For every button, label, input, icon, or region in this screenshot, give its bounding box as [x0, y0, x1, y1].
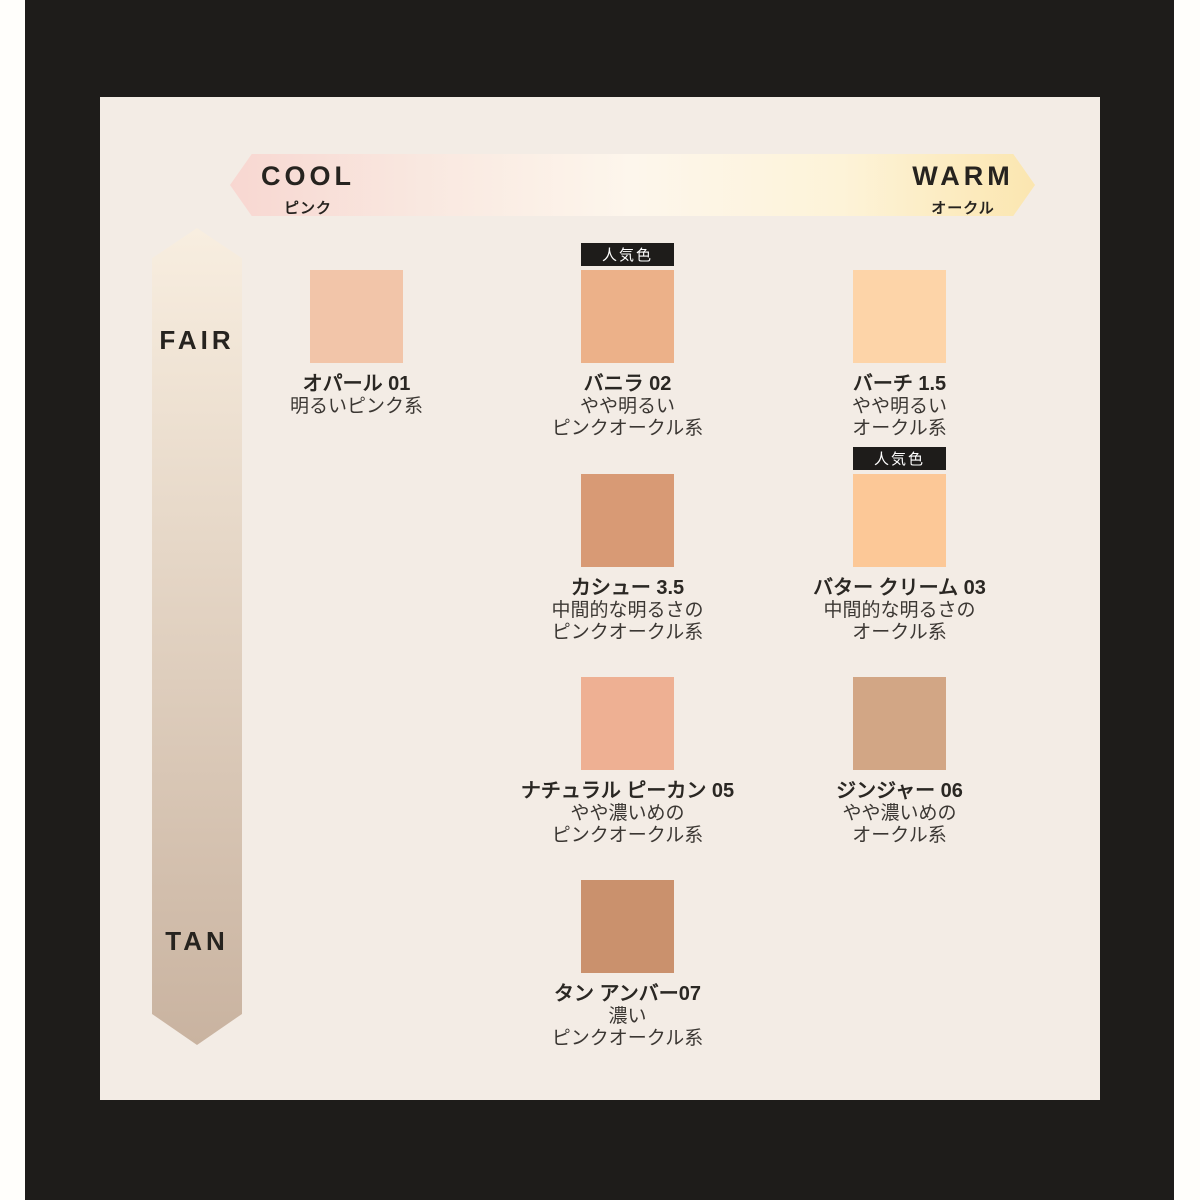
shade-item: オパール 01 明るいピンク系 [310, 270, 403, 363]
cool-label: COOL [261, 163, 355, 190]
shade-name: カシュー 3.5 [551, 577, 703, 600]
warm-sublabel: オークル [912, 197, 1013, 218]
shade-chart-panel: COOL ピンク WARM オークル FAIR TAN オパール 01 明るいピ… [100, 97, 1100, 1100]
popular-badge: 人気色 [853, 447, 946, 470]
shade-desc: やや濃いめの [521, 803, 734, 825]
popular-badge: 人気色 [581, 243, 674, 266]
shade-swatch [853, 270, 946, 363]
shade-desc: ピンクオークル系 [551, 622, 703, 644]
shade-item: ナチュラル ピーカン 05 やや濃いめのピンクオークル系 [581, 677, 674, 770]
warm-label: WARM [912, 163, 1013, 190]
shade-labels: ジンジャー 06 やや濃いめのオークル系 [836, 780, 963, 847]
shade-swatch [853, 677, 946, 770]
shade-name: タン アンバー07 [552, 983, 703, 1006]
shade-swatch [581, 474, 674, 567]
shade-item: 人気色 バニラ 02 やや明るいピンクオークル系 [581, 270, 674, 363]
shade-swatch [853, 474, 946, 567]
shade-name: バター クリーム 03 [813, 577, 986, 600]
shade-desc: 濃い [552, 1006, 703, 1028]
shade-item: ジンジャー 06 やや濃いめのオークル系 [853, 677, 946, 770]
shade-labels: カシュー 3.5 中間的な明るさのピンクオークル系 [551, 577, 703, 644]
shade-labels: バター クリーム 03 中間的な明るさのオークル系 [813, 577, 986, 644]
shade-labels: バニラ 02 やや明るいピンクオークル系 [552, 373, 703, 440]
shade-item: タン アンバー07 濃いピンクオークル系 [581, 880, 674, 973]
shade-swatch [581, 880, 674, 973]
shade-desc: ピンクオークル系 [521, 825, 734, 847]
shade-swatch [581, 270, 674, 363]
shade-labels: オパール 01 明るいピンク系 [290, 373, 423, 418]
warm-axis-label: WARM オークル [912, 163, 1013, 218]
shade-item: カシュー 3.5 中間的な明るさのピンクオークル系 [581, 474, 674, 567]
shade-desc: ピンクオークル系 [552, 1028, 703, 1050]
shade-labels: タン アンバー07 濃いピンクオークル系 [552, 983, 703, 1050]
shade-desc: オークル系 [852, 418, 947, 440]
shade-labels: バーチ 1.5 やや明るいオークル系 [852, 373, 947, 440]
shade-name: ナチュラル ピーカン 05 [521, 780, 734, 803]
shade-name: バニラ 02 [552, 373, 703, 396]
shade-desc: 中間的な明るさの [813, 600, 986, 622]
fair-label: FAIR [159, 325, 234, 356]
shade-item: 人気色 バター クリーム 03 中間的な明るさのオークル系 [853, 474, 946, 567]
shade-desc: やや明るい [852, 396, 947, 418]
shade-desc: やや明るい [552, 396, 703, 418]
shade-desc: 明るいピンク系 [290, 396, 423, 418]
shade-swatch [581, 677, 674, 770]
shade-name: ジンジャー 06 [836, 780, 963, 803]
cool-axis-label: COOL ピンク [261, 163, 355, 218]
shade-labels: ナチュラル ピーカン 05 やや濃いめのピンクオークル系 [521, 780, 734, 847]
shade-desc: ピンクオークル系 [552, 418, 703, 440]
shade-name: オパール 01 [290, 373, 423, 396]
shade-desc: オークル系 [836, 825, 963, 847]
shade-item: バーチ 1.5 やや明るいオークル系 [853, 270, 946, 363]
shade-name: バーチ 1.5 [852, 373, 947, 396]
shade-desc: 中間的な明るさの [551, 600, 703, 622]
shade-swatch [310, 270, 403, 363]
cool-sublabel: ピンク [261, 197, 355, 218]
tan-label: TAN [165, 926, 229, 957]
shade-desc: やや濃いめの [836, 803, 963, 825]
shade-desc: オークル系 [813, 622, 986, 644]
dark-frame: COOL ピンク WARM オークル FAIR TAN オパール 01 明るいピ… [25, 0, 1174, 1200]
